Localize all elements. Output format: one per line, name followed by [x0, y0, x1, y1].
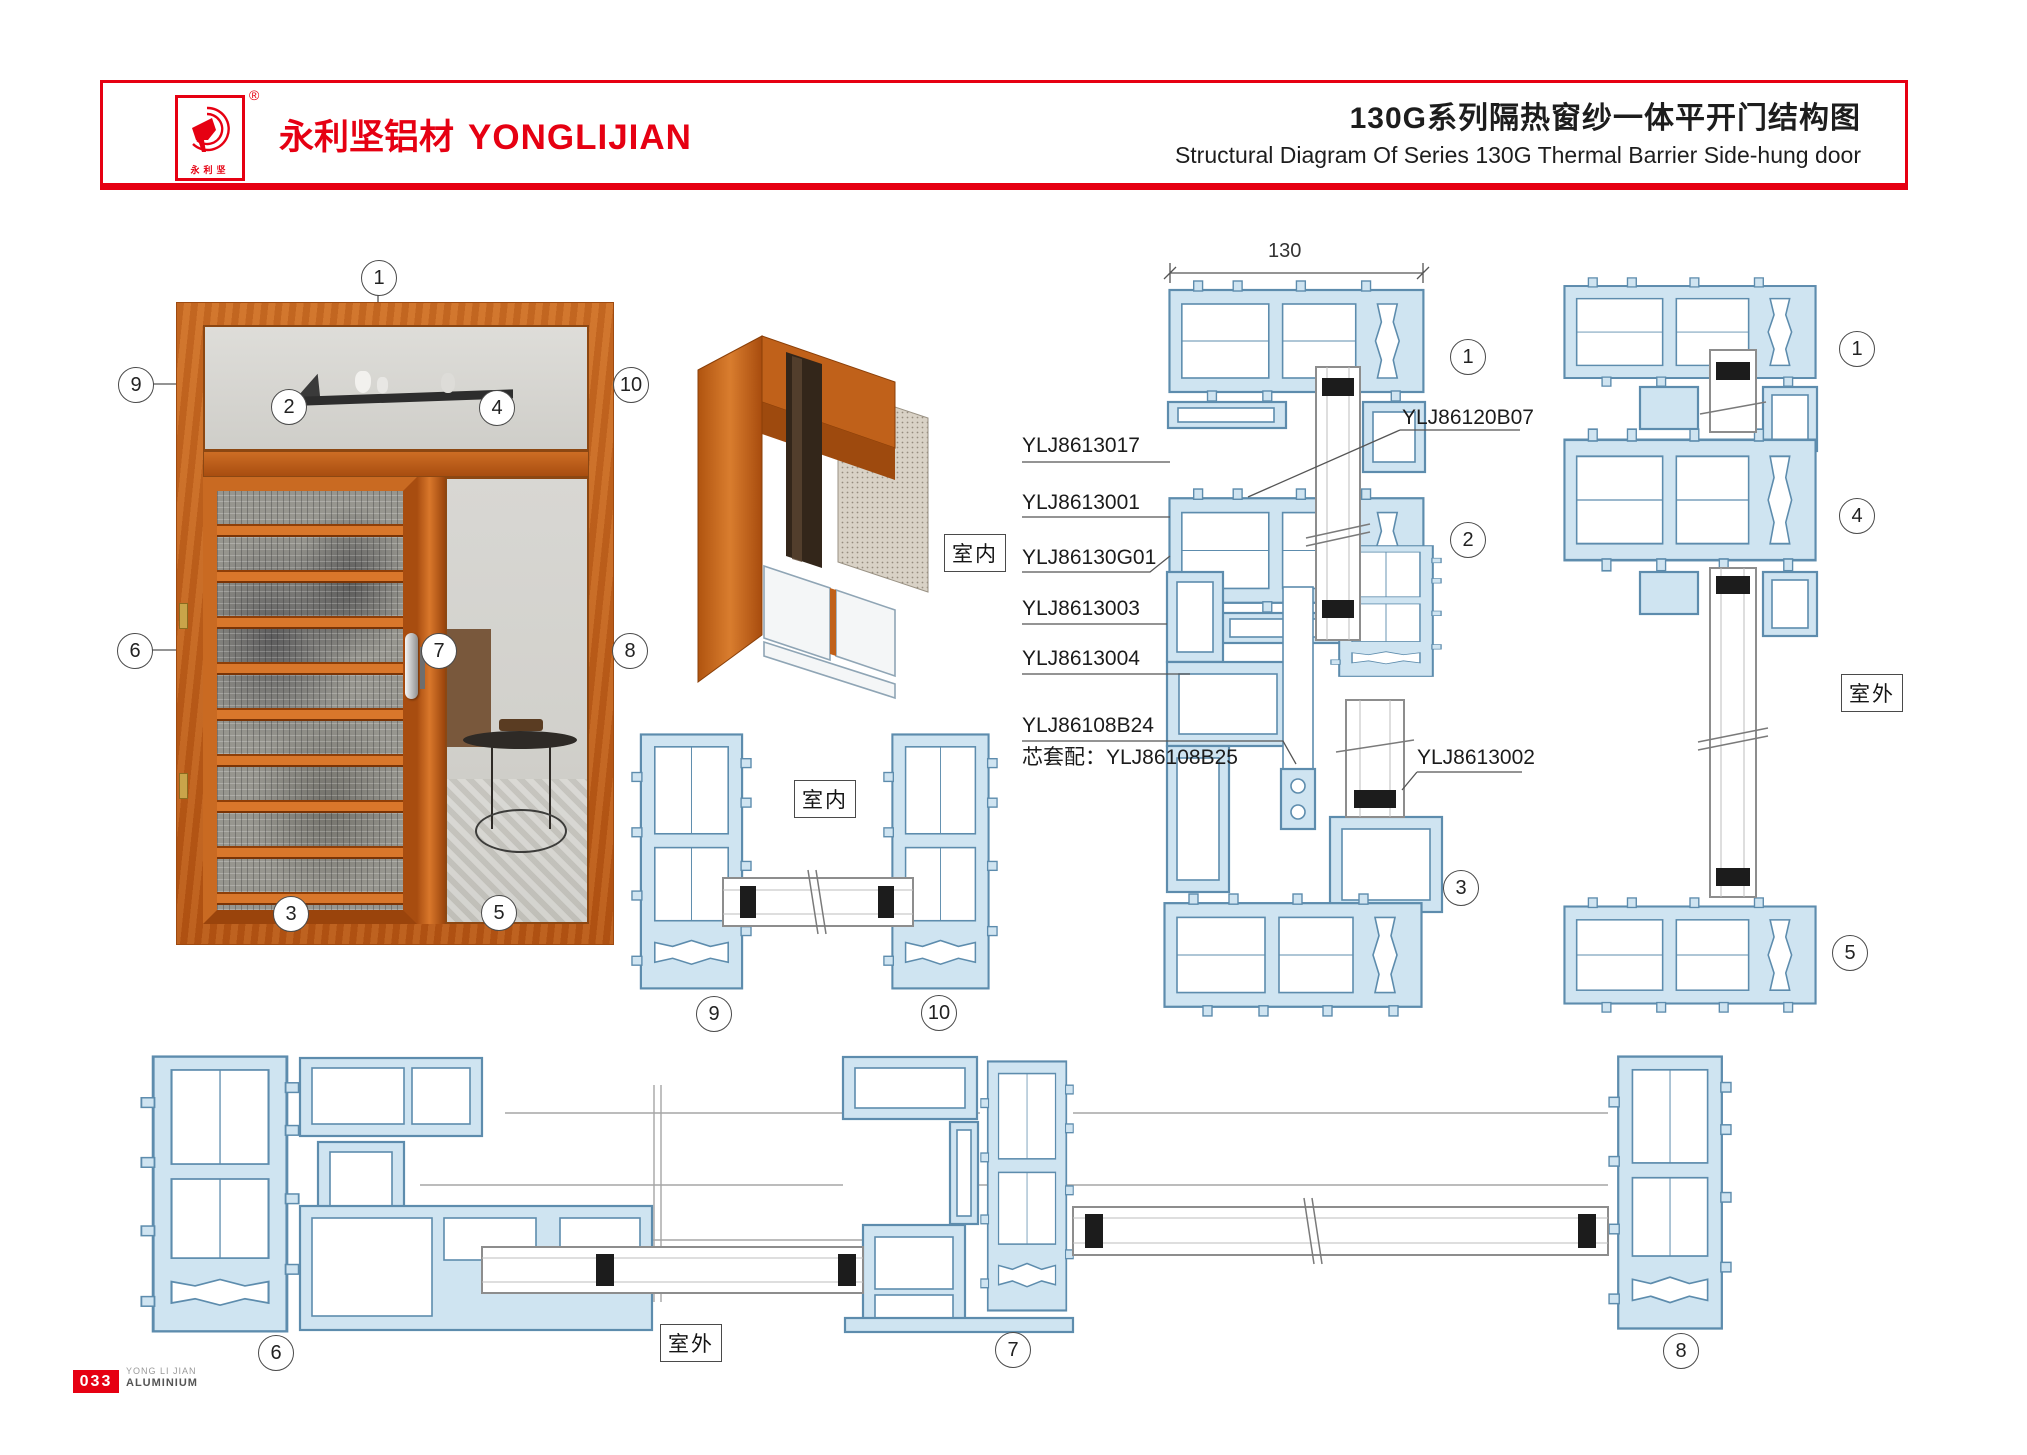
- section-bottom-right: [1609, 1057, 1731, 1329]
- section-bottom-middle: [843, 1057, 1073, 1332]
- callout-7: 7: [421, 633, 457, 669]
- callout-10: 10: [613, 367, 649, 403]
- hinge: [179, 773, 188, 799]
- section-callout-9: 9: [696, 996, 732, 1032]
- dimension-130-line: [1164, 263, 1429, 283]
- callout-6: 6: [117, 633, 153, 669]
- part-label-ylj86108b25: 芯套配：YLJ86108B25: [1022, 741, 1238, 771]
- chess-set: [499, 719, 543, 731]
- section-callout-6: 6: [258, 1335, 294, 1371]
- callout-4: 4: [479, 390, 515, 426]
- callout-8: 8: [612, 633, 648, 669]
- insect-mesh: [217, 491, 403, 910]
- brand-name-cn: 永利坚铝材: [279, 118, 454, 157]
- callout-9: 9: [118, 367, 154, 403]
- transom-glass: [203, 325, 589, 451]
- part-label-ylj86120b07: YLJ86120B07: [1402, 406, 1534, 430]
- section-right-column: [1564, 278, 1817, 1012]
- page-title-cn: 130G系列隔热窗纱一体平开门结构图: [1175, 93, 1861, 137]
- outdoor-label: 室外: [660, 1324, 722, 1362]
- glass-panel: [445, 477, 589, 924]
- page-number-badge: 033: [73, 1370, 119, 1393]
- section-pair-9-10: [632, 734, 997, 988]
- callout-2: 2: [271, 389, 307, 425]
- page-title: 130G系列隔热窗纱一体平开门结构图 Structural Diagram Of…: [1175, 93, 1861, 169]
- callout-5: 5: [481, 895, 517, 931]
- part-label-ylj8613017: YLJ8613017: [1022, 434, 1140, 458]
- page-title-en: Structural Diagram Of Series 130G Therma…: [1175, 142, 1861, 169]
- corner-cutaway-3d: [690, 330, 940, 702]
- section-callout-4: 4: [1839, 498, 1875, 534]
- registered-mark: ®: [249, 87, 259, 103]
- footer-brand: YONG LI JIAN ALUMINIUM: [126, 1367, 198, 1389]
- vase: [441, 373, 455, 393]
- catalog-page: 永利坚 ® 永利坚铝材YONGLIJIAN 130G系列隔热窗纱一体平开门结构图…: [0, 0, 2027, 1455]
- section-callout-5: 5: [1832, 935, 1868, 971]
- section-callout-2: 2: [1450, 522, 1486, 558]
- part-label-ylj8613001: YLJ8613001: [1022, 491, 1140, 515]
- part-label-ylj86108b24: YLJ86108B24: [1022, 714, 1154, 738]
- section-middle-top: [1168, 281, 1425, 472]
- section-callout-8: 8: [1663, 1333, 1699, 1369]
- logo-characters: 永利坚: [178, 163, 242, 176]
- screen-door-leaf: [203, 477, 417, 924]
- callout-1: 1: [361, 260, 397, 296]
- center-stile: [417, 477, 445, 924]
- footer-brand-bottom: ALUMINIUM: [126, 1377, 198, 1389]
- door-handle: [405, 633, 418, 699]
- logo-swirl-icon: [178, 100, 236, 158]
- callout-3: 3: [273, 896, 309, 932]
- brand-logo: 永利坚: [175, 95, 245, 181]
- part-label-ylj8613004: YLJ8613004: [1022, 647, 1140, 671]
- header: 永利坚 ® 永利坚铝材YONGLIJIAN 130G系列隔热窗纱一体平开门结构图…: [100, 80, 1908, 190]
- footer-brand-top: YONG LI JIAN: [126, 1367, 198, 1377]
- vase: [355, 371, 371, 393]
- indoor-label: 室内: [944, 534, 1006, 572]
- section-callout-7: 7: [995, 1332, 1031, 1368]
- table-base-ring: [475, 809, 567, 853]
- hinge: [179, 603, 188, 629]
- brand-name: 永利坚铝材YONGLIJIAN: [279, 109, 692, 160]
- brand-name-en: YONGLIJIAN: [468, 118, 692, 157]
- section-callout-3: 3: [1443, 870, 1479, 906]
- section-callout-1: 1: [1450, 339, 1486, 375]
- outdoor-label: 室外: [1841, 674, 1903, 712]
- part-label-ylj8613003: YLJ8613003: [1022, 597, 1140, 621]
- frame-mid-rail: [203, 451, 589, 477]
- section-callout-1b: 1: [1839, 331, 1875, 367]
- part-label-ylj8613002: YLJ8613002: [1417, 746, 1535, 770]
- door-photo: [176, 302, 614, 945]
- dimension-130: 130: [1268, 240, 1301, 263]
- table-top: [463, 731, 577, 749]
- vase: [377, 377, 388, 393]
- part-label-ylj86130g01: YLJ86130G01: [1022, 546, 1156, 570]
- section-callout-10: 10: [921, 995, 957, 1031]
- indoor-label: 室内: [794, 780, 856, 818]
